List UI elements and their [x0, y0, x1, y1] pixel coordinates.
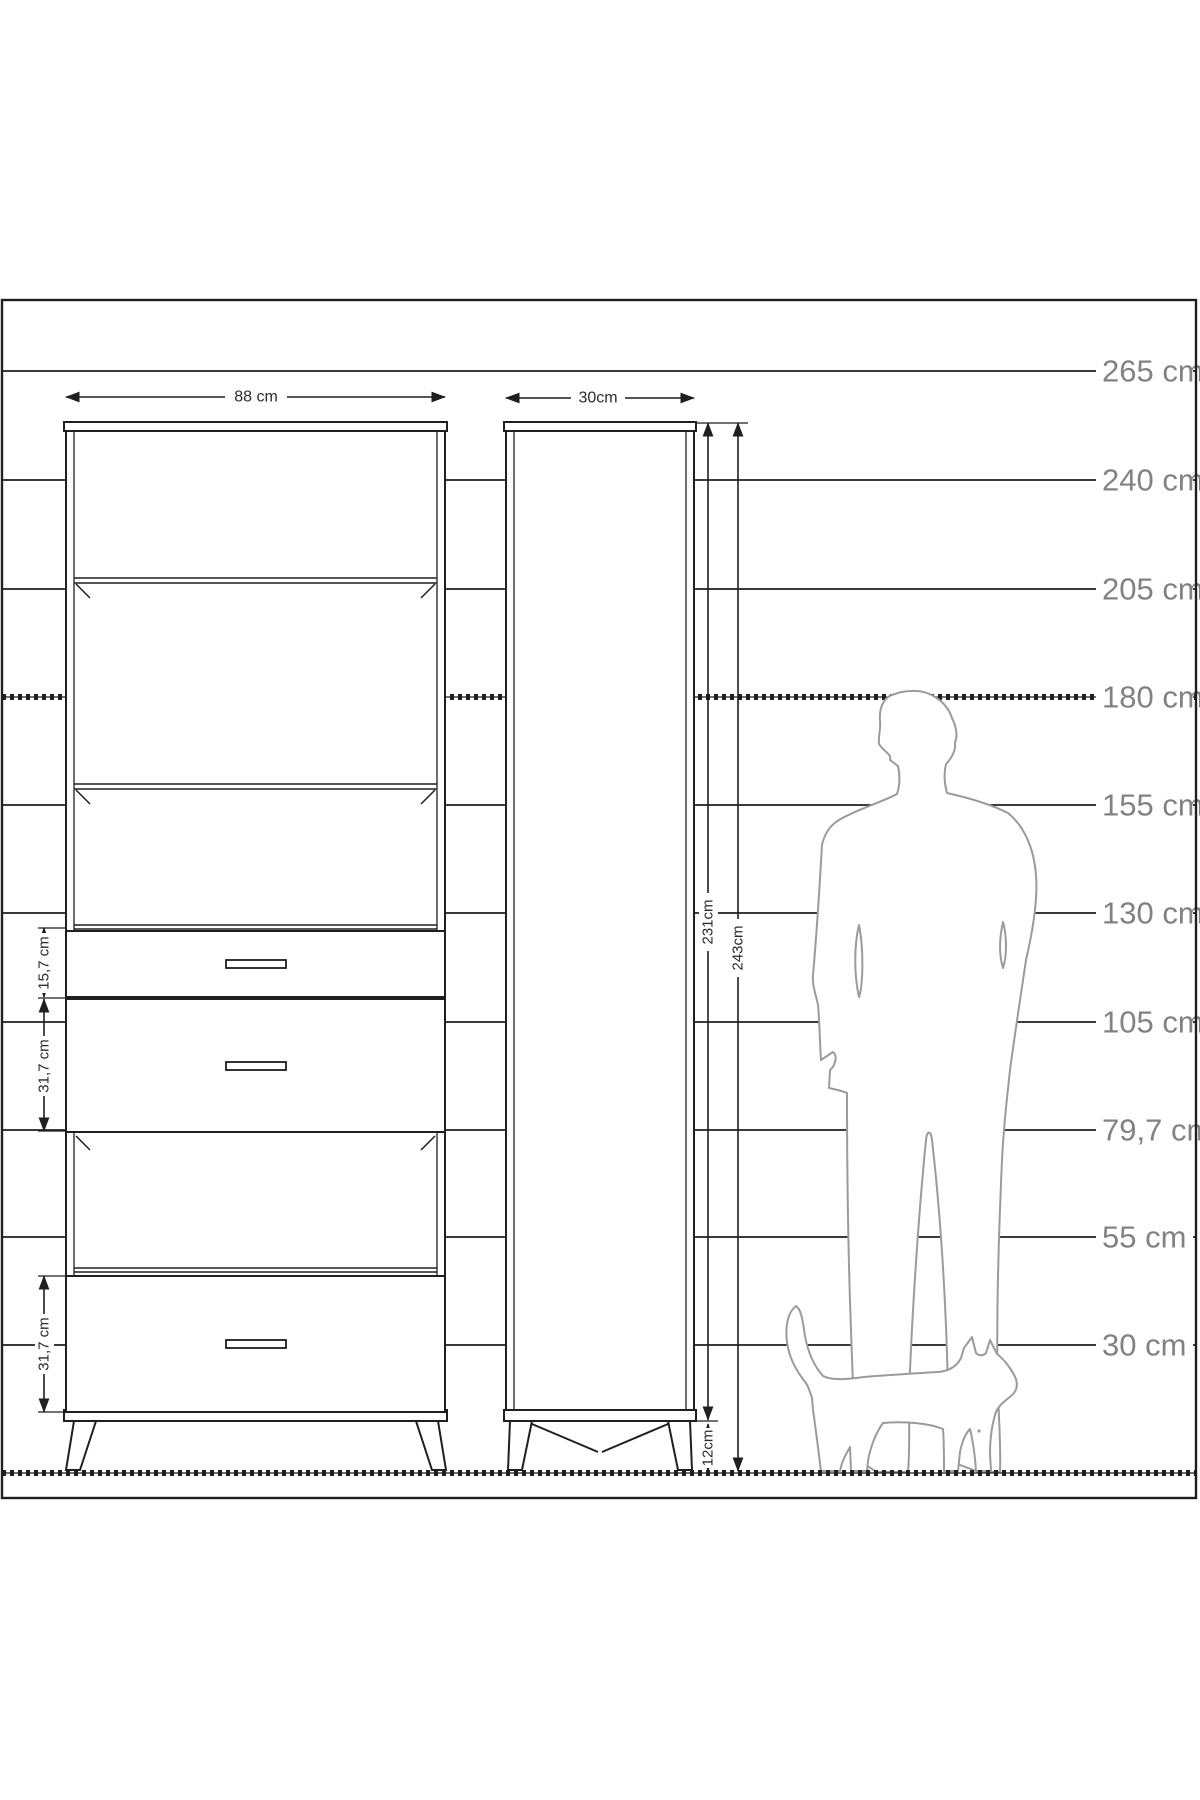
diagram-canvas: 88 cm 30cm 231cm 243cm 12cm 15,7 cm 31,7… — [0, 0, 1200, 1800]
drawer-1-height-label: 15,7 cm — [36, 936, 53, 989]
front-top-panel — [64, 422, 447, 431]
drawer-2-handle — [226, 1062, 286, 1070]
scale-label-240: 240 cm — [1102, 463, 1200, 498]
scale-label-55: 55 cm — [1102, 1220, 1186, 1255]
scale-label-105: 105 cm — [1102, 1005, 1200, 1040]
side-body — [506, 431, 694, 1410]
scale-label-79: 79,7 cm — [1102, 1113, 1200, 1148]
drawer-1-handle — [226, 960, 286, 968]
cabinet-front-view — [64, 422, 447, 1470]
scale-label-30: 30 cm — [1102, 1328, 1186, 1363]
leg-height-label: 12cm — [700, 1430, 717, 1467]
height-scale-labels: 265 cm 240 cm 205 cm 180 cm 155 cm 130 c… — [1096, 352, 1200, 1364]
cabinet-side-view — [504, 422, 696, 1470]
scale-label-130: 130 cm — [1102, 896, 1200, 931]
side-leg-brace-right — [602, 1424, 668, 1452]
person-left-arm-gap — [855, 925, 862, 997]
furniture-dimension-diagram: 88 cm 30cm 231cm 243cm 12cm 15,7 cm 31,7… — [0, 0, 1200, 1800]
side-leg-left — [508, 1421, 532, 1470]
person-right-arm-gap — [1000, 922, 1006, 968]
side-leg-right — [668, 1421, 692, 1470]
body-height-label: 231cm — [700, 899, 717, 944]
front-leg-right — [416, 1421, 446, 1470]
scale-label-205: 205 cm — [1102, 572, 1200, 607]
scale-label-180: 180 cm — [1102, 680, 1200, 715]
front-leg-left — [66, 1421, 96, 1470]
side-leg-brace-left — [532, 1424, 598, 1452]
person-outline — [813, 691, 1037, 1472]
side-depth-label: 30cm — [578, 390, 617, 407]
cat-body-dot — [977, 1429, 980, 1432]
total-height-label: 243cm — [730, 925, 747, 970]
person-silhouette — [813, 691, 1037, 1472]
side-bottom-panel — [504, 1410, 696, 1421]
drawer-3-height-label: 31,7 cm — [36, 1317, 53, 1370]
scale-label-155: 155 cm — [1102, 788, 1200, 823]
scale-label-265: 265 cm — [1102, 354, 1200, 389]
side-top-panel — [504, 422, 696, 431]
front-width-label: 88 cm — [234, 389, 278, 406]
drawer-2-height-label: 31,7 cm — [36, 1039, 53, 1092]
drawer-3-handle — [226, 1340, 286, 1348]
